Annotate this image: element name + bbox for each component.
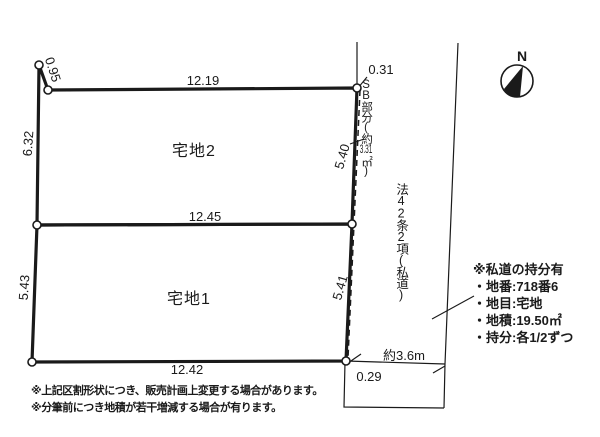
north-compass-icon [501, 65, 533, 97]
info-item-land-category: ・地目:宅地 [473, 295, 573, 312]
survey-point [348, 220, 356, 228]
dimension-parcel2-left: 6.32 [19, 121, 37, 166]
footnote-1: ※上記区割形状につき、販売計画上変更する場合があります。 [31, 383, 323, 400]
setback-label-area: 3.31 [360, 144, 372, 156]
setback-label-head: SB部分(約 [360, 79, 372, 144]
dimension-road-width: 約3.6m [374, 345, 434, 364]
info-item-lot-number: ・地番:718番6 [473, 278, 573, 295]
dimension-parcel2-top: 12.19 [181, 73, 225, 88]
setback-label: SB部分(約3.31㎡) [360, 79, 372, 177]
road-right-boundary-line [444, 43, 458, 408]
info-box-leader [432, 296, 474, 319]
private-road-info-box: ※私道の持分有 ・地番:718番6 ・地目:宅地 ・地積:19.50㎡ ・持分:… [473, 261, 573, 346]
dimension-parcel2-bottom: 12.45 [183, 209, 227, 224]
dimension-setback-top-offset: 0.31 [359, 62, 403, 77]
dimension-parcel1-bottom: 12.42 [165, 362, 209, 377]
footnotes: ※上記区割形状につき、販売計画上変更する場合があります。 ※分筆前につき地積が若… [31, 383, 323, 416]
parcel2-label: 宅地2 [172, 137, 216, 161]
survey-point [33, 221, 41, 229]
parcel1-label: 宅地1 [167, 285, 211, 309]
setback-label-unit: ㎡) [360, 155, 372, 177]
road-designation-label: 法42条2項(私道) [394, 183, 407, 301]
info-item-land-area: ・地積:19.50㎡ [473, 312, 573, 329]
survey-point [28, 358, 36, 366]
info-title: ※私道の持分有 [473, 261, 573, 278]
survey-point [342, 357, 350, 365]
plot-drawing [0, 0, 600, 437]
info-item-share: ・持分:各1/2ずつ [473, 329, 573, 346]
dimension-setback-bottom-offset: 0.29 [347, 369, 391, 384]
land-plot-diagram: 宅地2 宅地1 12.19 12.45 12.42 0.31 0.29 約3.6… [0, 0, 600, 437]
road-width-arrow-right [433, 366, 445, 373]
footnote-2: ※分筆前につき地積が若干増減する場合が有ります。 [31, 400, 323, 417]
dimension-parcel1-left: 5.43 [15, 265, 33, 310]
north-label: N [517, 48, 527, 64]
